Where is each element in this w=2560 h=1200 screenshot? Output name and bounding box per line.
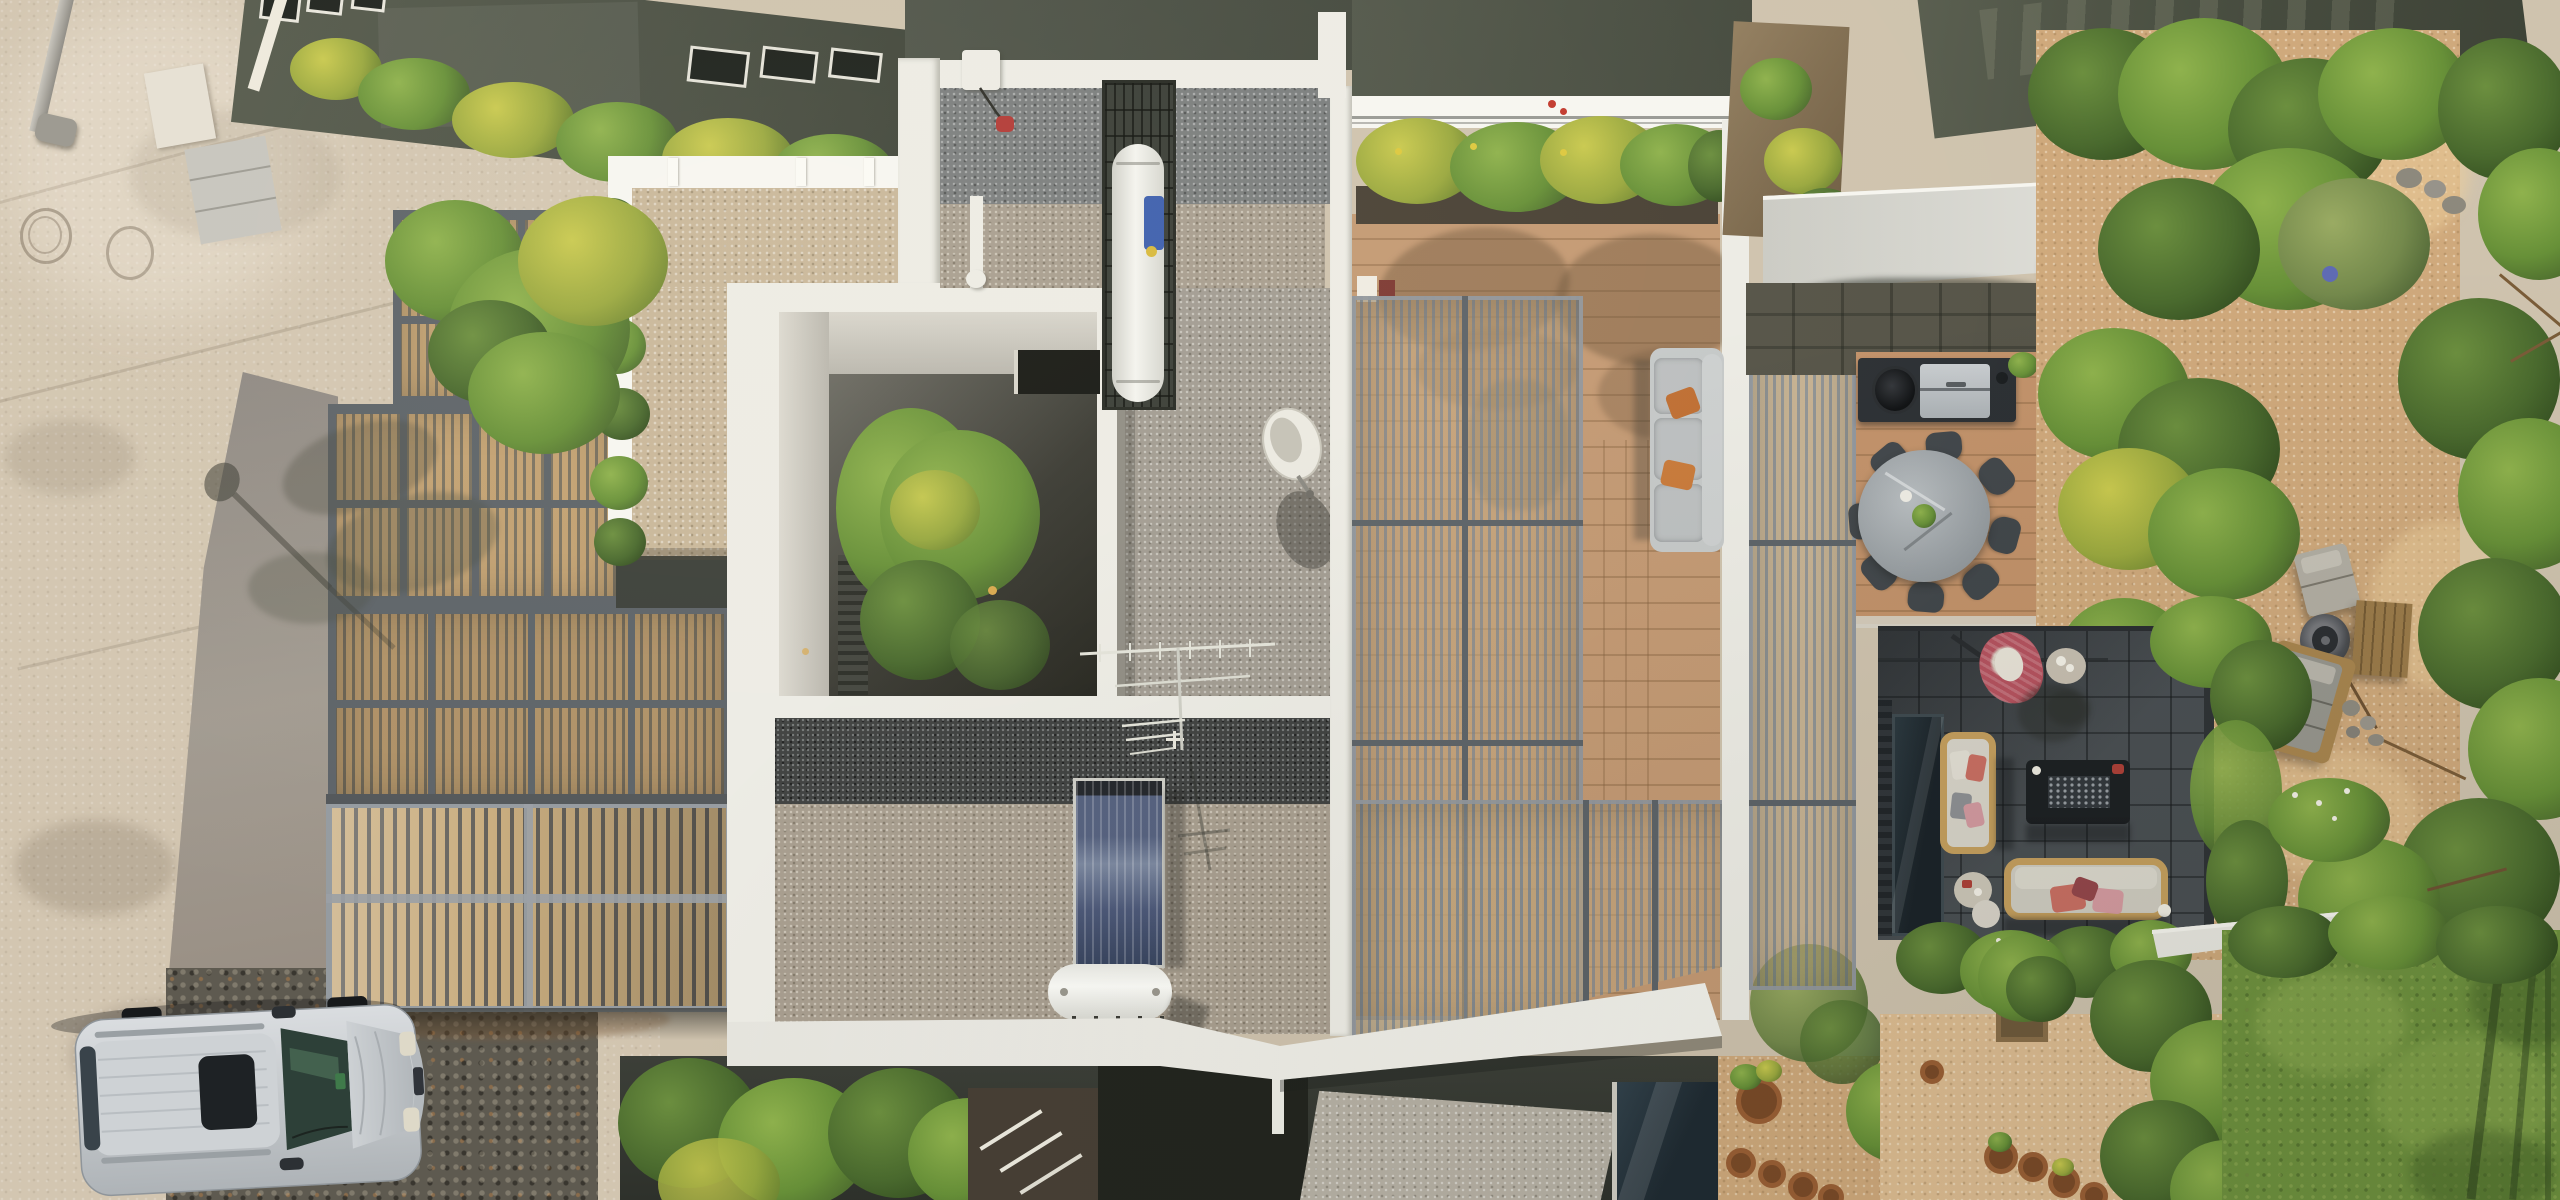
lounger-pillow <box>2300 549 2343 574</box>
fire-table-shadow <box>2026 824 2130 842</box>
street-stain <box>15 820 175 915</box>
drum-center <box>2321 636 2330 645</box>
patio-side-table <box>2046 648 2086 684</box>
panel-shadow <box>1165 790 1185 968</box>
white-flower-bush <box>2268 778 2390 862</box>
white-flower <box>2344 788 2350 794</box>
parapet-top <box>608 156 908 188</box>
red-flower <box>1548 100 1556 108</box>
rock <box>2424 180 2446 198</box>
white-flower <box>2292 792 2298 798</box>
table-centerpiece <box>1912 504 1936 528</box>
screen-frame <box>1749 540 1856 546</box>
patio-fire-table <box>2026 760 2130 824</box>
yellow-flower <box>1560 149 1567 156</box>
white-item <box>1974 888 1982 896</box>
side-burner <box>1996 372 2008 384</box>
sofa-back <box>1702 354 1722 546</box>
patio-glass-wall <box>1892 714 1944 936</box>
grill-seam <box>1920 388 1990 391</box>
lawn-edge-bush <box>2328 896 2450 970</box>
marble-vein <box>1885 472 1946 512</box>
red-junction-box <box>996 116 1014 132</box>
skylight <box>828 47 883 83</box>
skylight <box>306 0 345 16</box>
stone <box>2360 716 2376 730</box>
solar-panel <box>1073 778 1165 968</box>
tree-shadow-streak <box>2545 945 2551 1200</box>
east-parapet <box>1330 86 1352 1036</box>
herb-pot <box>2008 352 2038 378</box>
white-ridge-wall <box>898 58 940 288</box>
garden-light <box>988 586 997 595</box>
stone <box>2346 726 2360 738</box>
planter-tree <box>2006 956 2076 1022</box>
pillow-pink <box>1963 801 1986 828</box>
blue-bucket <box>2322 266 2338 282</box>
shrub <box>590 456 648 510</box>
manhole-cover <box>106 226 154 280</box>
street-tree <box>518 196 668 326</box>
yellow-flower <box>1470 143 1477 150</box>
yellow-flower <box>1395 148 1402 155</box>
cantilever-slab-south <box>700 960 1760 1100</box>
table-item <box>2066 664 2074 672</box>
lawn-edge-bush <box>2436 906 2558 984</box>
red-item <box>2112 764 2124 774</box>
white-flower <box>2332 816 2337 821</box>
rock <box>2442 196 2466 214</box>
table-plate <box>1900 490 1912 502</box>
carport-shadow <box>616 556 732 608</box>
terrace-sofa <box>1650 348 1724 552</box>
street-stain <box>5 420 135 495</box>
wood-coffee-table <box>2351 600 2412 678</box>
sofa-shadow <box>1996 758 2014 850</box>
tank-seam <box>1116 162 1160 165</box>
bush <box>2098 178 2260 320</box>
table-shadow <box>2046 690 2090 726</box>
parapet-cap <box>864 158 874 186</box>
street-tree <box>468 332 620 454</box>
screen-frame <box>1749 800 1856 806</box>
skylight <box>687 45 751 88</box>
pillow-coral <box>1965 754 1987 783</box>
beige-gravel-field <box>632 188 902 288</box>
patio-screen-grid <box>1878 700 1892 936</box>
courtyard-interior <box>779 312 1097 702</box>
plant-pot <box>1758 1160 1786 1188</box>
parapet-cap <box>668 158 678 186</box>
aerial-photo-scene <box>0 0 2560 1200</box>
sofa-cushion <box>1654 484 1704 542</box>
courtyard-wall-left <box>779 312 829 702</box>
stone <box>2342 700 2360 716</box>
tank-controller <box>1144 196 1164 250</box>
roof-edge-shadow <box>632 548 729 560</box>
white-mug <box>2032 766 2041 775</box>
lounger-fold <box>2301 573 2354 588</box>
gate-stile <box>524 802 533 1012</box>
tank-seam <box>1116 380 1160 383</box>
table-item <box>2056 656 2066 666</box>
garden-light <box>802 648 809 655</box>
kamado-grill <box>1872 366 1918 414</box>
shrub <box>594 518 646 566</box>
vent-cable <box>960 80 1040 150</box>
courtyard-tree <box>950 600 1050 690</box>
panel-tubes <box>1076 781 1162 965</box>
glass-reflection <box>1886 717 1944 933</box>
courtyard-opening <box>1014 350 1100 394</box>
pot-plant <box>2052 1158 2074 1176</box>
bbq-grill <box>1920 364 1990 418</box>
pot-plant <box>1988 1132 2012 1152</box>
pad-seam <box>195 197 276 213</box>
plant-pot <box>1726 1148 1756 1178</box>
suv <box>40 990 460 1200</box>
pipe-elbow <box>966 270 986 288</box>
tank-fitting <box>1146 246 1157 257</box>
red-item <box>1962 880 1972 888</box>
manhole-cover-inner <box>28 216 62 254</box>
kitchen-counter <box>1858 358 2016 422</box>
lamp-shadow <box>180 440 460 680</box>
bush <box>2148 468 2300 600</box>
courtyard-tree-highlight <box>890 470 980 550</box>
white-flower <box>2316 800 2322 806</box>
patio-coffee-table <box>1972 900 2000 928</box>
dining-chair <box>1907 580 1945 613</box>
grill-handle <box>1946 382 1966 387</box>
privacy-screen-right <box>1749 284 1856 990</box>
tank-cylinder <box>1112 144 1164 402</box>
plant-shadow <box>1556 234 1748 366</box>
lawn-edge-bush <box>2228 906 2340 978</box>
fire-glass <box>2048 776 2110 808</box>
skylight <box>759 46 818 84</box>
lawn-light-patch <box>2256 972 2406 1076</box>
screen-frame <box>1352 740 1583 746</box>
plant-pot <box>2018 1152 2048 1182</box>
concrete-pad <box>184 136 281 245</box>
pad-seam <box>189 165 270 181</box>
dining-table <box>1858 450 1990 582</box>
rock <box>2396 168 2422 188</box>
bush <box>2278 178 2430 310</box>
utility-pad <box>144 63 216 148</box>
plant-pot <box>1788 1172 1818 1200</box>
stone <box>2368 734 2384 746</box>
screen-frame <box>1352 520 1583 526</box>
parapet-cap <box>796 158 806 186</box>
wall-shrub <box>1740 58 1812 120</box>
gate-lintel <box>326 794 732 804</box>
terrace-corner-post <box>1318 12 1346 98</box>
plant-pot <box>1920 1060 1944 1084</box>
terrace-back-wall <box>1352 0 1752 98</box>
pergola-frame <box>328 700 732 708</box>
red-flower <box>1560 108 1567 115</box>
patio-sofa-left <box>1940 732 1996 854</box>
